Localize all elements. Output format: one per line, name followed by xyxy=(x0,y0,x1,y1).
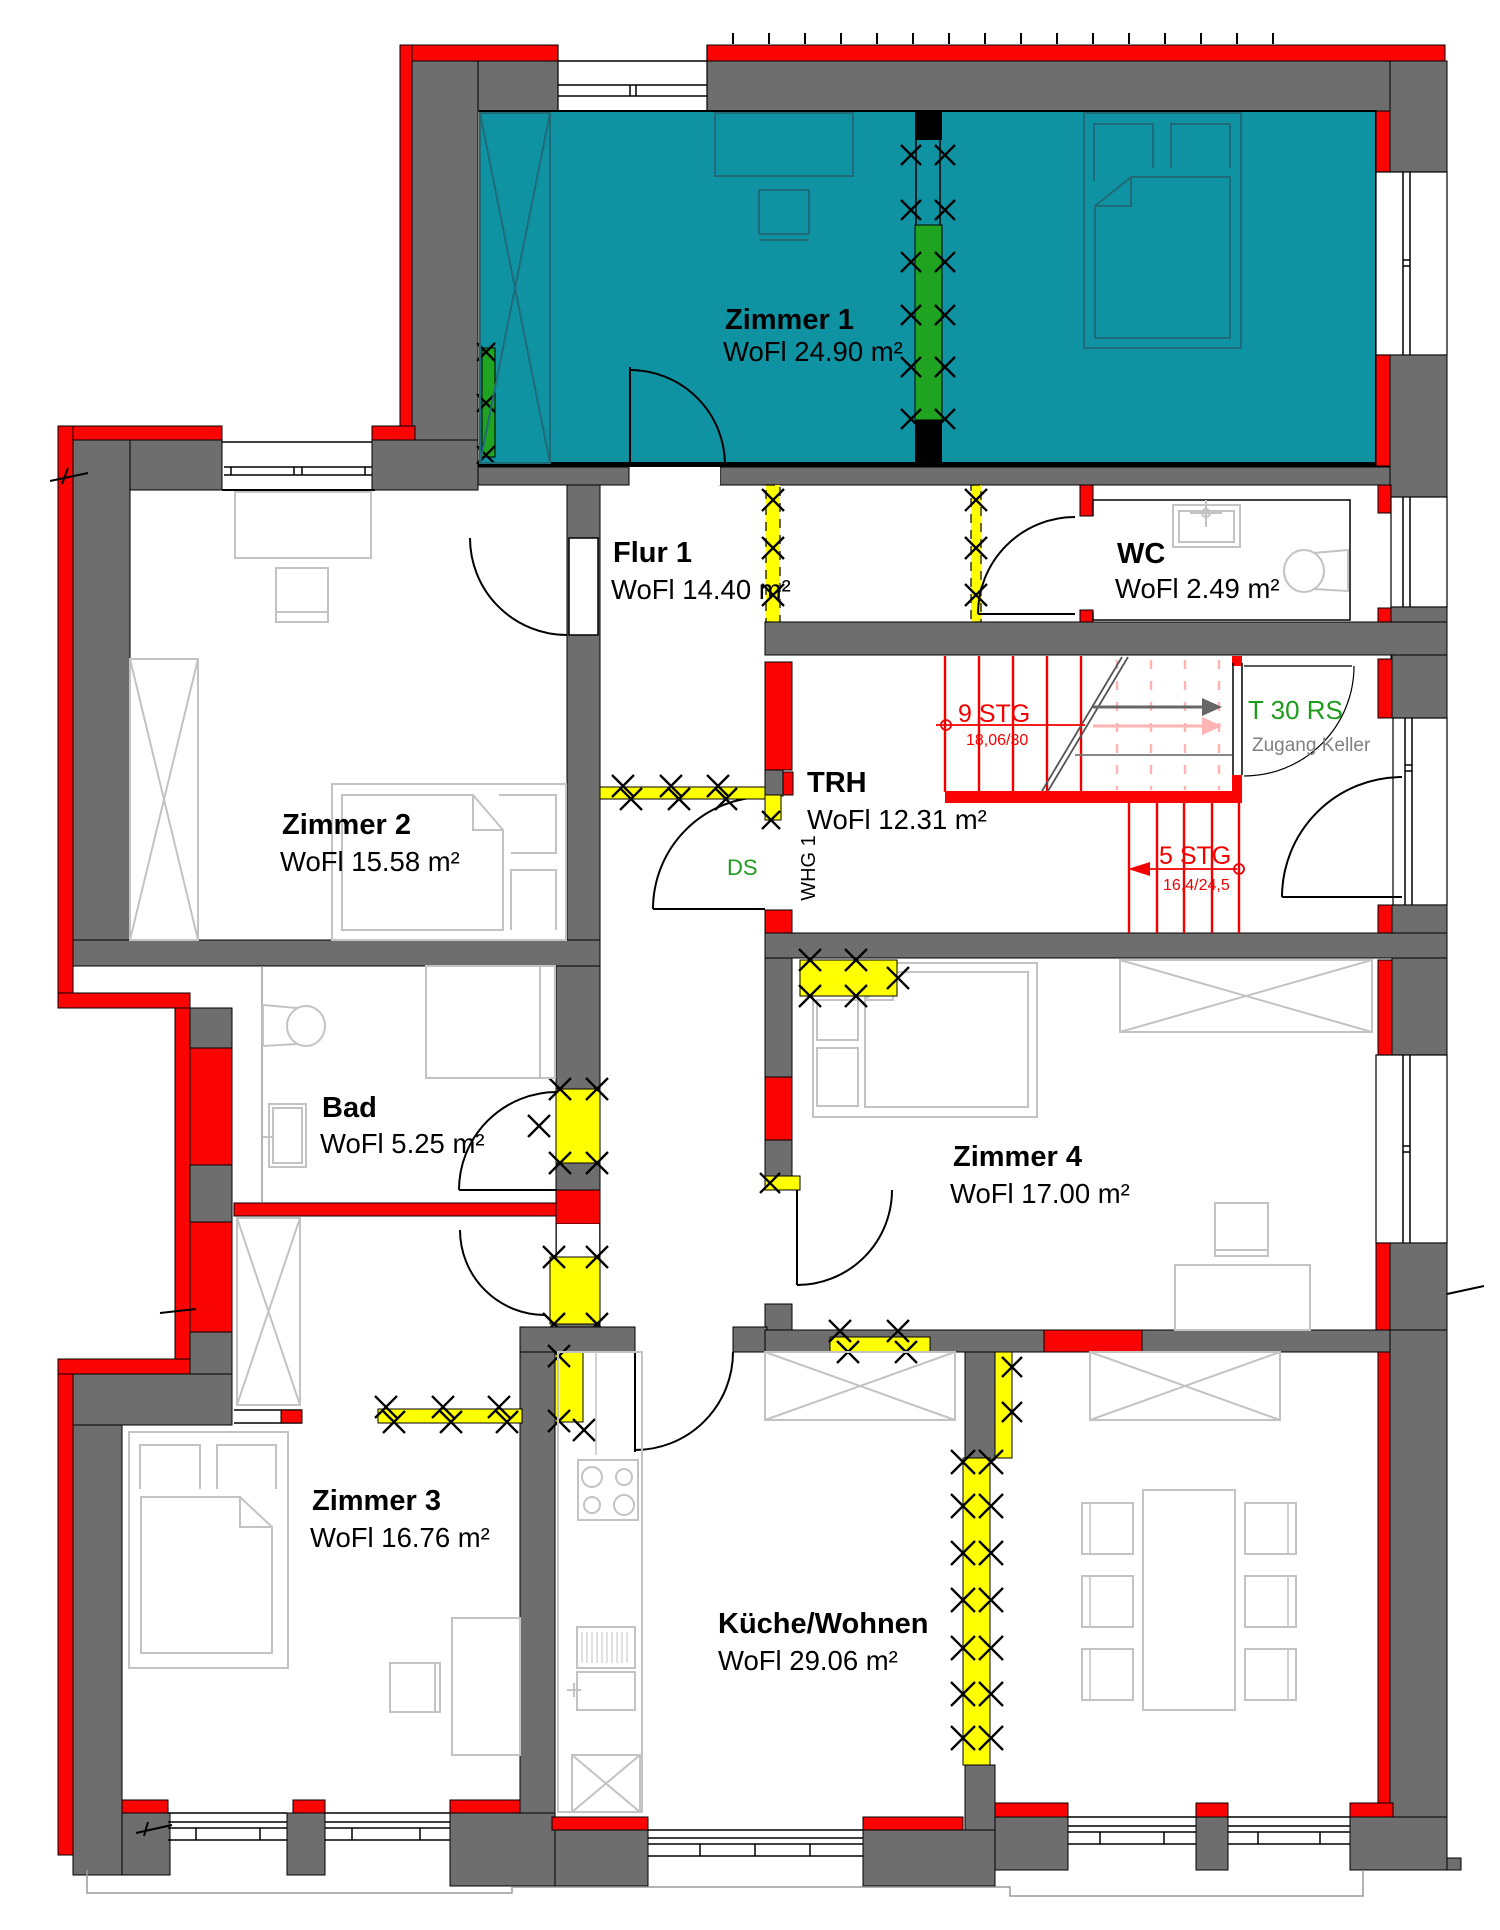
svg-text:T 30 RS: T 30 RS xyxy=(1248,695,1343,725)
svg-text:DS: DS xyxy=(727,855,758,880)
svg-text:WoFl 29.06 m²: WoFl 29.06 m² xyxy=(718,1645,898,1676)
svg-text:WoFl 5.25 m²: WoFl 5.25 m² xyxy=(320,1128,485,1159)
svg-text:Zimmer 1: Zimmer 1 xyxy=(725,304,854,336)
svg-text:18,06/30: 18,06/30 xyxy=(966,732,1028,749)
svg-text:WoFl 17.00 m²: WoFl 17.00 m² xyxy=(950,1178,1130,1209)
svg-text:WoFl 24.90 m²: WoFl 24.90 m² xyxy=(723,336,903,367)
svg-text:WoFl 14.40 m²: WoFl 14.40 m² xyxy=(611,574,791,605)
svg-text:Küche/Wohnen: Küche/Wohnen xyxy=(718,1608,929,1640)
svg-text:WoFl 16.76 m²: WoFl 16.76 m² xyxy=(310,1522,490,1553)
svg-text:16,4/24,5: 16,4/24,5 xyxy=(1163,877,1230,894)
svg-text:Bad: Bad xyxy=(322,1092,377,1124)
svg-text:WoFl 2.49 m²: WoFl 2.49 m² xyxy=(1115,573,1280,604)
svg-text:Zimmer 2: Zimmer 2 xyxy=(282,809,411,841)
svg-text:Zugang Keller: Zugang Keller xyxy=(1252,735,1371,756)
svg-text:9 STG: 9 STG xyxy=(958,700,1030,728)
svg-text:TRH: TRH xyxy=(807,767,867,799)
svg-text:WC: WC xyxy=(1117,538,1165,570)
svg-text:WoFl 12.31 m²: WoFl 12.31 m² xyxy=(807,804,987,835)
svg-text:Zimmer 4: Zimmer 4 xyxy=(953,1141,1082,1173)
svg-text:WHG 1: WHG 1 xyxy=(798,835,820,901)
svg-text:WoFl 15.58 m²: WoFl 15.58 m² xyxy=(280,846,460,877)
svg-text:Flur 1: Flur 1 xyxy=(613,537,692,569)
svg-text:Zimmer 3: Zimmer 3 xyxy=(312,1485,441,1517)
svg-text:5 STG: 5 STG xyxy=(1159,842,1231,870)
